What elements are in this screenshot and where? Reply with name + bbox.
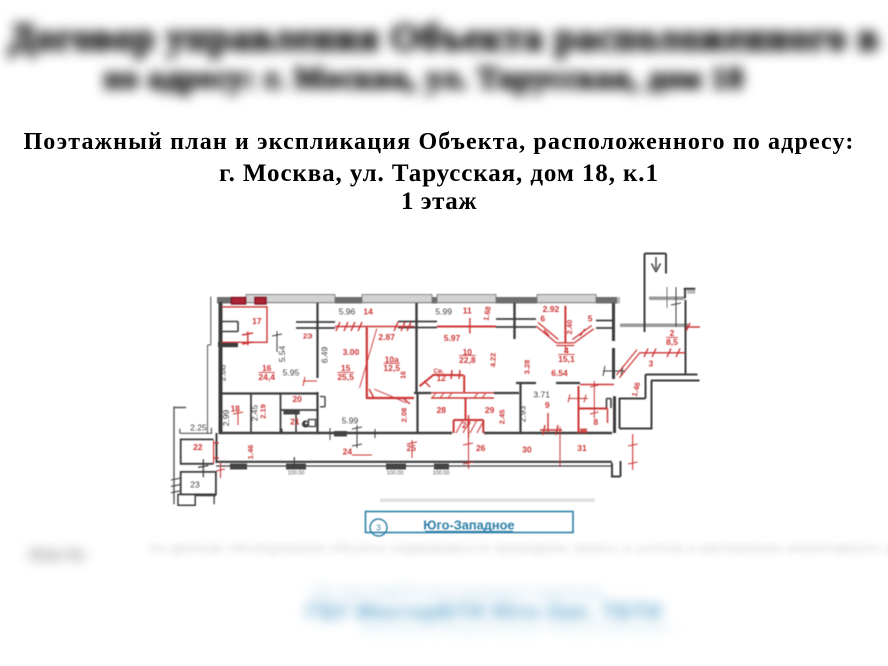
svg-text:24: 24 bbox=[343, 447, 353, 457]
svg-text:2Э: 2Э bbox=[303, 332, 313, 341]
svg-text:20: 20 bbox=[292, 394, 302, 404]
svg-text:Св.: Св. bbox=[433, 368, 444, 375]
svg-text:5.95: 5.95 bbox=[283, 368, 300, 378]
svg-text:5.99: 5.99 bbox=[342, 416, 359, 426]
svg-text:100.00: 100.00 bbox=[387, 471, 404, 477]
svg-text:29: 29 bbox=[485, 405, 495, 415]
svg-text:2.08: 2.08 bbox=[400, 408, 409, 423]
svg-text:31: 31 bbox=[577, 443, 587, 453]
svg-text:6.49: 6.49 bbox=[320, 346, 330, 363]
svg-text:26: 26 bbox=[476, 443, 486, 453]
svg-text:3: 3 bbox=[376, 524, 381, 533]
svg-text:11: 11 bbox=[463, 306, 472, 316]
svg-text:17: 17 bbox=[252, 316, 262, 326]
svg-text:2.88: 2.88 bbox=[218, 364, 228, 381]
svg-text:2.40: 2.40 bbox=[565, 320, 574, 335]
svg-text:5.99: 5.99 bbox=[435, 307, 452, 317]
svg-text:2.45: 2.45 bbox=[249, 404, 259, 421]
svg-text:3.00: 3.00 bbox=[343, 347, 360, 357]
svg-text:5.96: 5.96 bbox=[339, 307, 356, 317]
svg-text:25,5: 25,5 bbox=[337, 372, 354, 382]
svg-text:3.71: 3.71 bbox=[533, 390, 550, 400]
svg-text:14: 14 bbox=[363, 307, 373, 317]
svg-text:21: 21 bbox=[290, 417, 300, 427]
svg-text:18: 18 bbox=[230, 404, 240, 414]
svg-text:100.00: 100.00 bbox=[288, 471, 305, 477]
svg-text:6.54: 6.54 bbox=[551, 368, 568, 378]
svg-text:30: 30 bbox=[522, 445, 532, 455]
svg-text:5.97: 5.97 bbox=[444, 333, 461, 343]
svg-text:25: 25 bbox=[406, 443, 416, 453]
svg-text:2.19: 2.19 bbox=[259, 404, 268, 419]
svg-text:5.54: 5.54 bbox=[277, 345, 287, 362]
svg-text:28: 28 bbox=[437, 405, 447, 415]
svg-text:8,5: 8,5 bbox=[666, 337, 678, 347]
svg-text:23: 23 bbox=[190, 480, 200, 490]
svg-text:2.87: 2.87 bbox=[378, 332, 395, 342]
svg-text:1.68: 1.68 bbox=[481, 306, 492, 322]
svg-text:2.99: 2.99 bbox=[221, 409, 231, 426]
svg-text:6: 6 bbox=[540, 314, 545, 324]
svg-text:5: 5 bbox=[588, 314, 593, 324]
svg-text:8: 8 bbox=[593, 417, 598, 427]
svg-text:24,4: 24,4 bbox=[258, 372, 275, 382]
svg-text:1.46: 1.46 bbox=[246, 445, 255, 460]
svg-text:4.22: 4.22 bbox=[489, 353, 498, 368]
svg-text:3: 3 bbox=[649, 359, 654, 369]
svg-text:2.25: 2.25 bbox=[190, 423, 207, 433]
svg-text:12,5: 12,5 bbox=[383, 363, 400, 373]
svg-text:Юго-Западное: Юго-Западное bbox=[423, 518, 514, 533]
svg-text:22: 22 bbox=[193, 442, 203, 452]
svg-text:100.00: 100.00 bbox=[433, 471, 450, 477]
svg-text:2.92: 2.92 bbox=[543, 304, 560, 314]
svg-text:3.28: 3.28 bbox=[522, 360, 531, 375]
svg-text:16: 16 bbox=[400, 371, 407, 379]
svg-text:2.93: 2.93 bbox=[518, 405, 528, 422]
svg-text:22,8: 22,8 bbox=[459, 355, 476, 365]
svg-text:27: 27 bbox=[462, 421, 471, 430]
svg-text:9: 9 bbox=[545, 400, 550, 410]
svg-text:2.45: 2.45 bbox=[497, 410, 506, 425]
svg-text:15,1: 15,1 bbox=[558, 354, 575, 364]
svg-text:1.46: 1.46 bbox=[630, 381, 642, 397]
